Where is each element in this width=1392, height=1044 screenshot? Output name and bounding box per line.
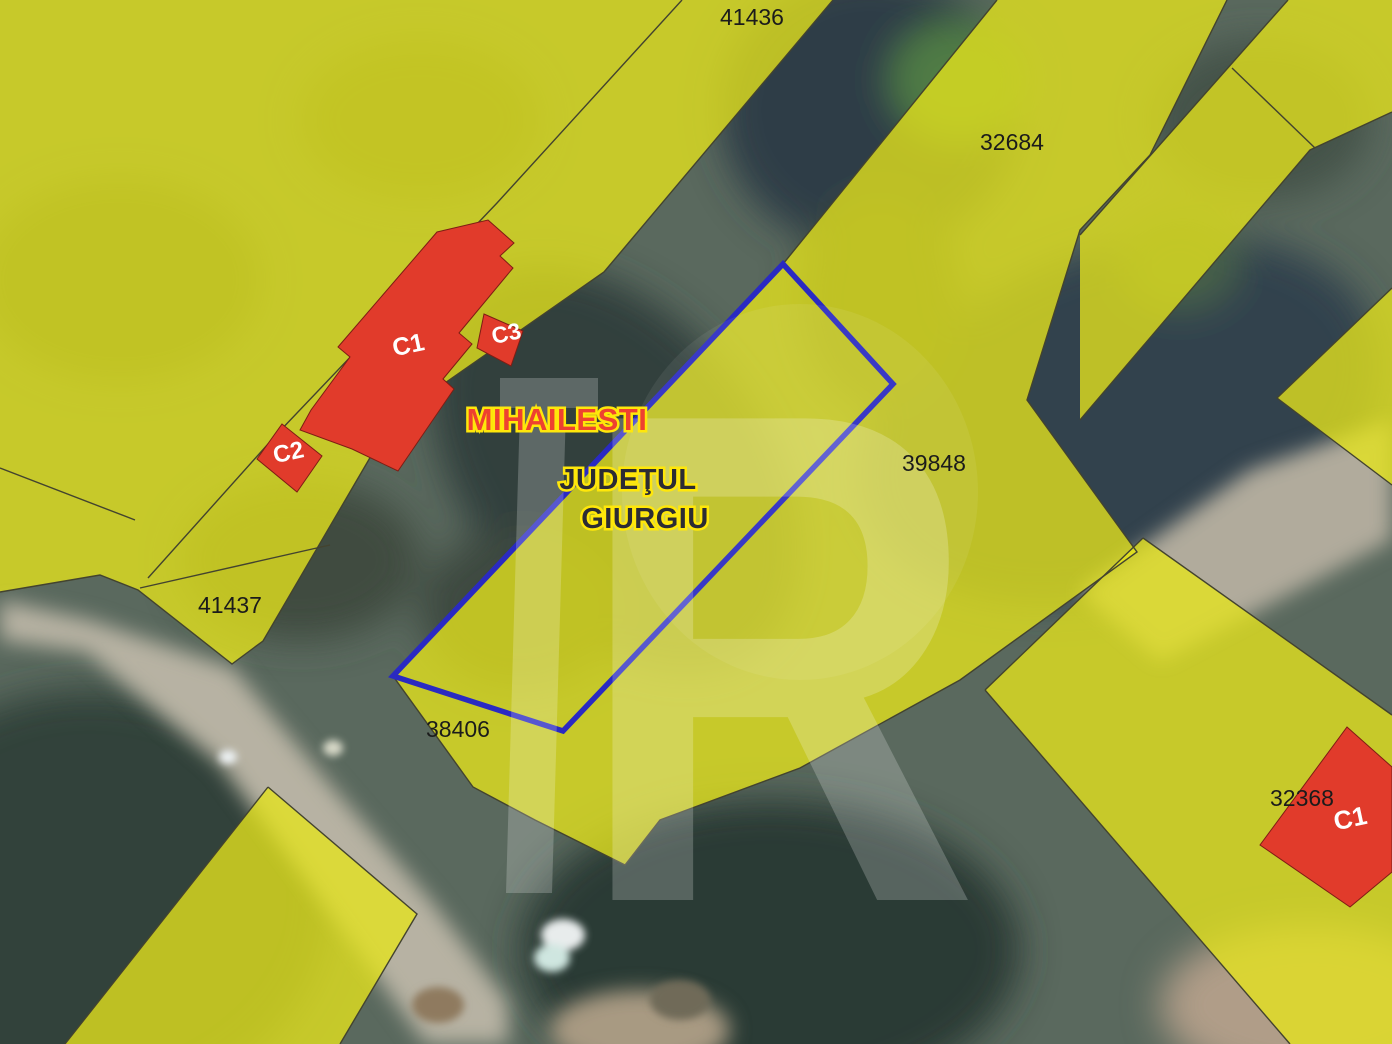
parcel-label-38406: 38406	[426, 716, 490, 742]
county-label-line1: JUDEŢUL	[559, 464, 696, 496]
cadastral-map: R 41436 32684 39848 41437 38406 32368 C1…	[0, 0, 1392, 1044]
parcel-label-32684: 32684	[980, 129, 1044, 155]
house-roof	[412, 987, 464, 1023]
house-roof	[534, 944, 570, 972]
town-label: MIHAILESTI	[467, 402, 648, 437]
house-roof	[323, 740, 343, 756]
vehicle	[219, 750, 237, 764]
cadastral-map-viewport: R 41436 32684 39848 41437 38406 32368 C1…	[0, 0, 1392, 1044]
parcel-label-39848: 39848	[902, 450, 966, 476]
watermark-letter: R	[575, 267, 979, 1044]
parcel-label-41437: 41437	[198, 592, 262, 618]
parcel-label-41436: 41436	[720, 4, 784, 30]
parcel-label-32368: 32368	[1270, 785, 1334, 811]
county-label-line2: GIURGIU	[581, 503, 709, 535]
